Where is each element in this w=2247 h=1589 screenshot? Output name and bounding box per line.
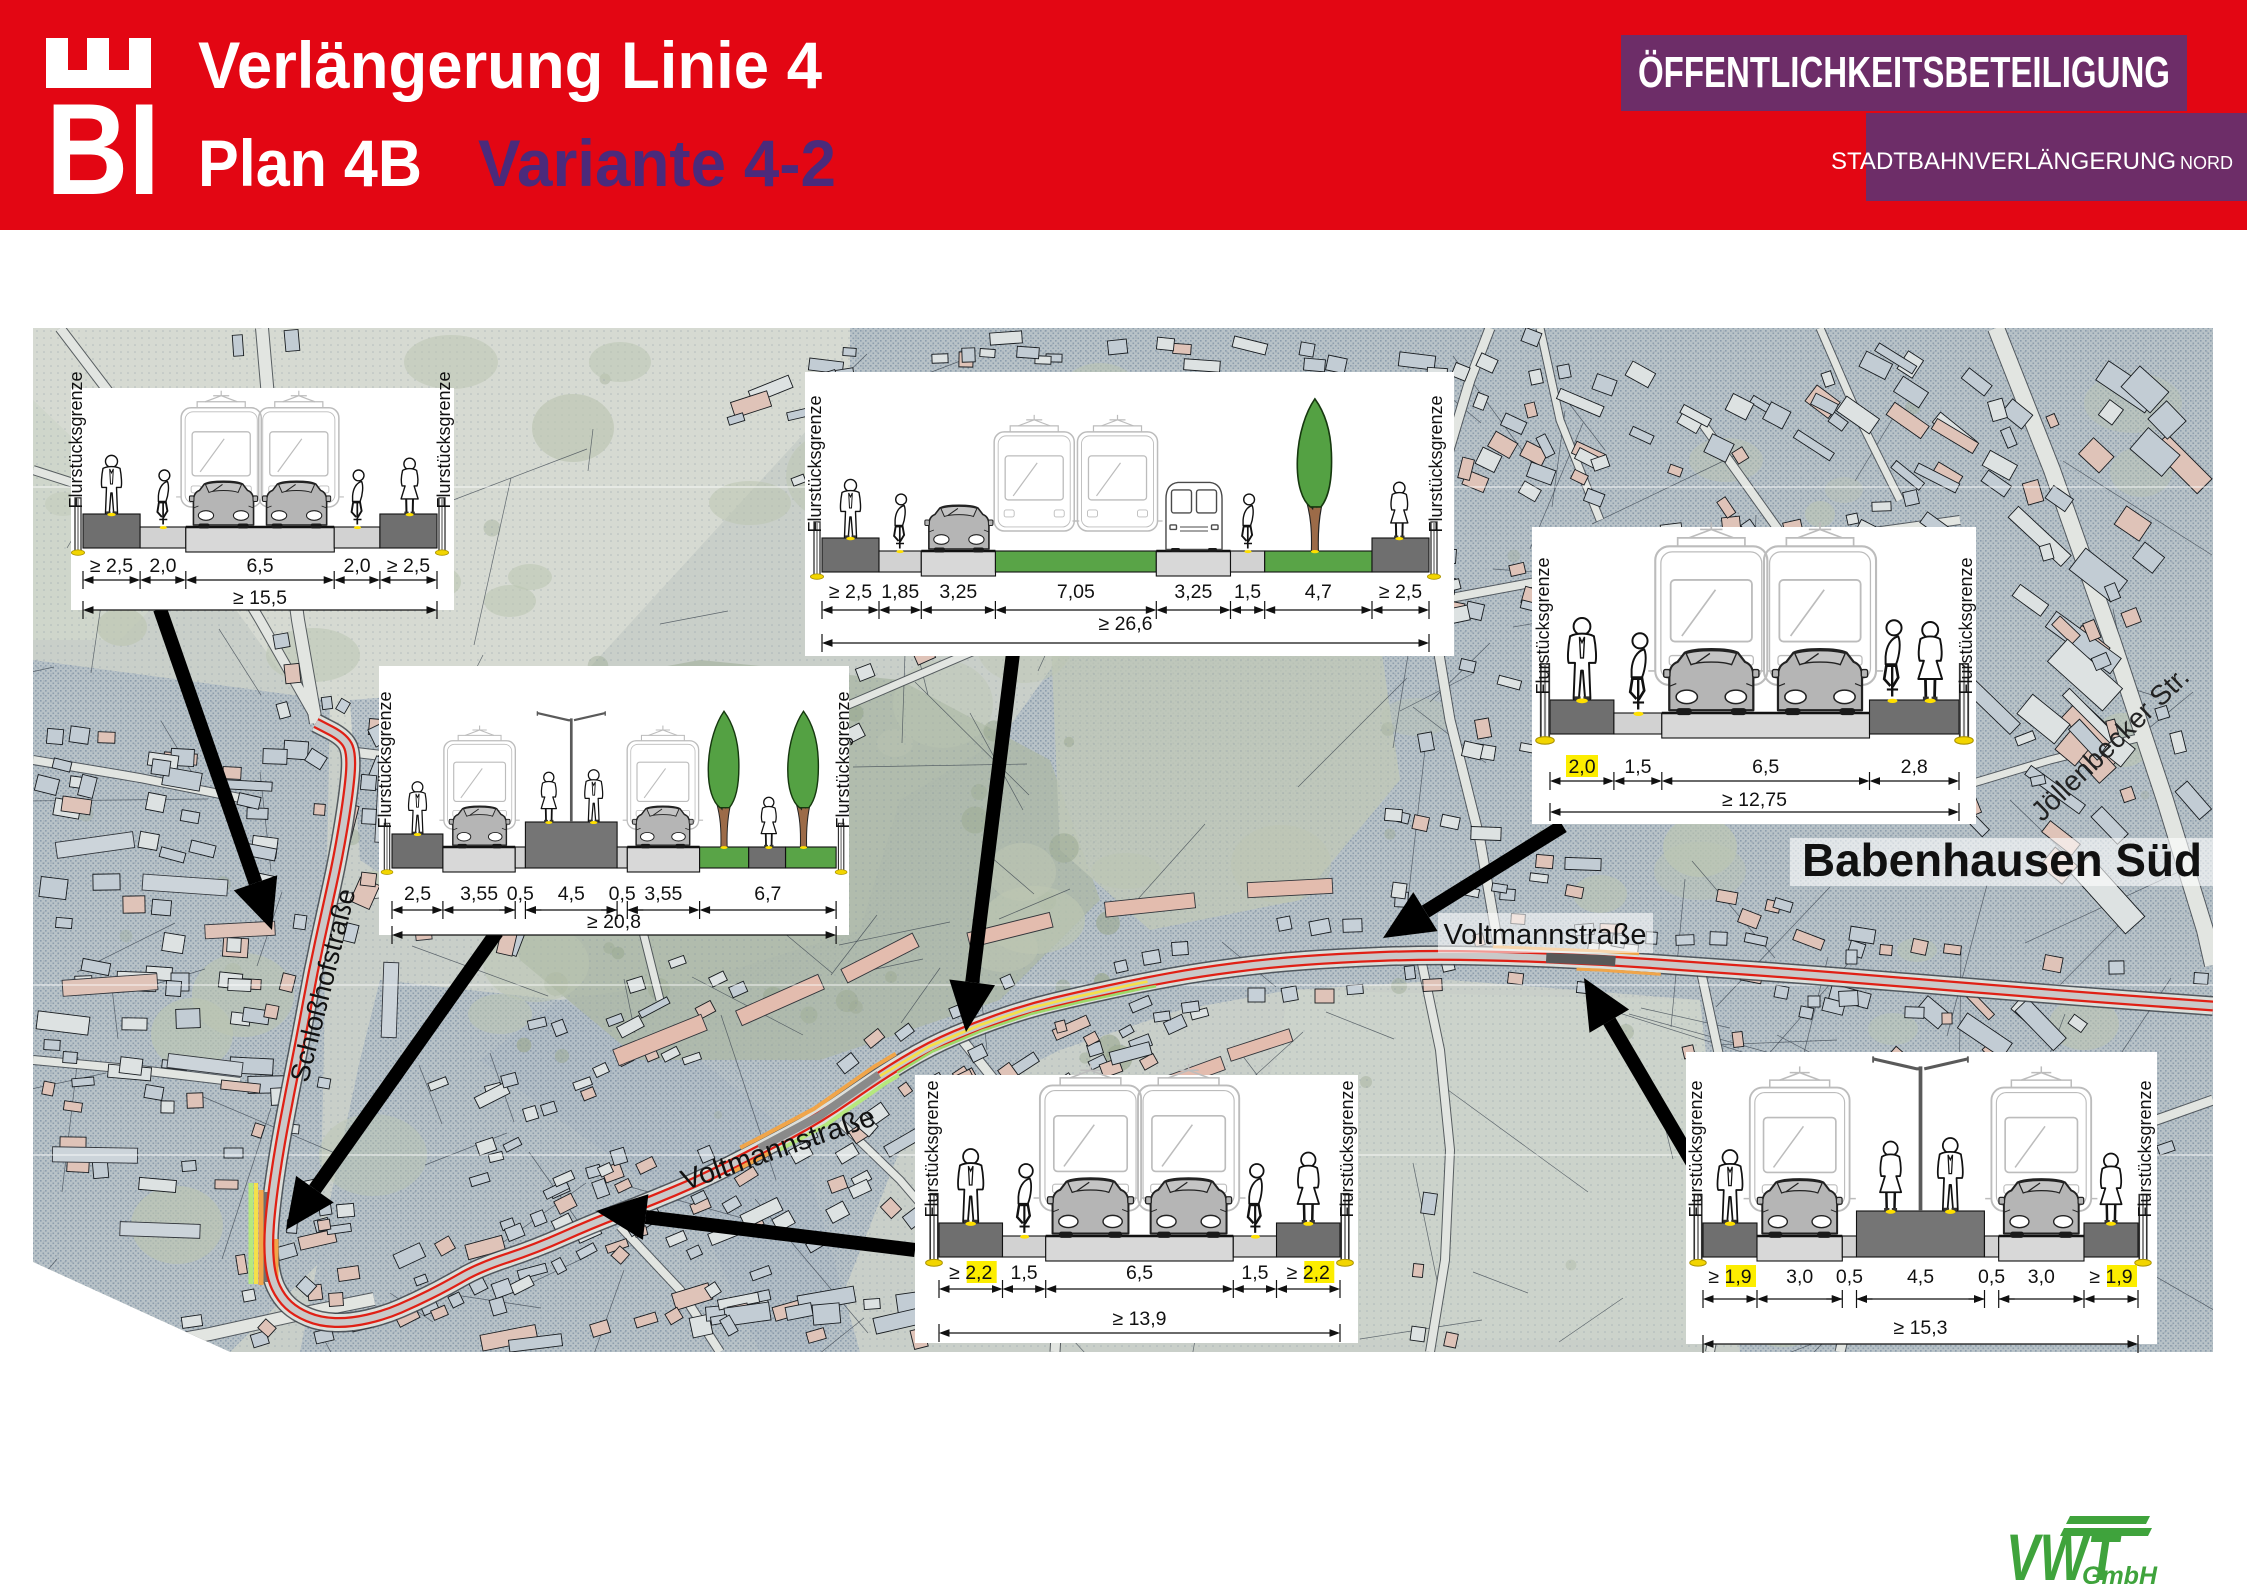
svg-text:0,5: 0,5 <box>1978 1266 2005 1288</box>
svg-text:≥ 2,5: ≥ 2,5 <box>387 555 430 577</box>
svg-text:Verlängerung Linie 4: Verlängerung Linie 4 <box>198 28 822 102</box>
svg-text:Flurstücksgrenze: Flurstücksgrenze <box>66 371 86 508</box>
svg-text:BI: BI <box>46 76 160 222</box>
svg-text:2,0: 2,0 <box>344 555 371 577</box>
svg-text:≥ 2,5: ≥ 2,5 <box>1379 581 1422 603</box>
svg-text:Flurstücksgrenze: Flurstücksgrenze <box>1337 1080 1357 1217</box>
svg-text:2,5: 2,5 <box>404 883 431 905</box>
svg-text:3,55: 3,55 <box>460 883 498 905</box>
svg-text:Flurstücksgrenze: Flurstücksgrenze <box>1956 557 1976 694</box>
svg-text:≥ 2,2: ≥ 2,2 <box>949 1262 992 1284</box>
svg-text:4,5: 4,5 <box>1907 1266 1934 1288</box>
svg-text:1,5: 1,5 <box>1234 581 1261 603</box>
svg-text:Voltmannstraße: Voltmannstraße <box>1443 919 1646 951</box>
svg-text:Babenhausen Süd: Babenhausen Süd <box>1802 834 2202 886</box>
svg-text:Flurstücksgrenze: Flurstücksgrenze <box>1426 395 1446 532</box>
svg-text:Flurstücksgrenze: Flurstücksgrenze <box>1686 1080 1706 1217</box>
svg-text:Flurstücksgrenze: Flurstücksgrenze <box>434 371 454 508</box>
svg-text:1,5: 1,5 <box>1624 756 1651 778</box>
svg-text:1,85: 1,85 <box>881 581 919 603</box>
svg-text:Flurstücksgrenze: Flurstücksgrenze <box>805 395 825 532</box>
svg-text:Flurstücksgrenze: Flurstücksgrenze <box>833 691 853 828</box>
svg-text:3,25: 3,25 <box>1174 581 1212 603</box>
svg-text:≥ 2,5: ≥ 2,5 <box>829 581 872 603</box>
svg-text:2,8: 2,8 <box>1901 756 1928 778</box>
svg-text:Flurstücksgrenze: Flurstücksgrenze <box>2135 1080 2155 1217</box>
svg-text:Flurstücksgrenze: Flurstücksgrenze <box>922 1080 942 1217</box>
svg-text:≥ 13,9: ≥ 13,9 <box>1112 1308 1166 1330</box>
svg-text:1,5: 1,5 <box>1241 1262 1268 1284</box>
svg-text:6,5: 6,5 <box>1752 756 1779 778</box>
svg-text:3,55: 3,55 <box>644 883 682 905</box>
svg-text:STADTBAHNVERLÄNGERUNGNORD: STADTBAHNVERLÄNGERUNGNORD <box>1831 148 2233 175</box>
svg-text:≥ 2,5: ≥ 2,5 <box>90 555 133 577</box>
svg-text:6,7: 6,7 <box>754 883 781 905</box>
svg-text:6,5: 6,5 <box>1126 1262 1153 1284</box>
svg-text:≥ 12,75: ≥ 12,75 <box>1722 789 1787 811</box>
svg-text:7,05: 7,05 <box>1057 581 1095 603</box>
svg-text:≥ 1,9: ≥ 1,9 <box>1708 1266 1751 1288</box>
svg-text:4,7: 4,7 <box>1305 581 1332 603</box>
svg-text:≥ 26,6: ≥ 26,6 <box>1098 613 1152 635</box>
svg-text:0,5: 0,5 <box>507 883 534 905</box>
svg-text:3,0: 3,0 <box>1786 1266 1813 1288</box>
svg-text:≥ 2,2: ≥ 2,2 <box>1287 1262 1330 1284</box>
svg-text:0,5: 0,5 <box>1836 1266 1863 1288</box>
svg-text:≥ 15,3: ≥ 15,3 <box>1893 1317 1947 1339</box>
svg-text:≥ 15,5: ≥ 15,5 <box>233 587 287 609</box>
svg-text:ÖFFENTLICHKEITSBETEILIGUNG: ÖFFENTLICHKEITSBETEILIGUNG <box>1638 48 2170 97</box>
svg-text:≥ 1,9: ≥ 1,9 <box>2089 1266 2132 1288</box>
svg-text:2,0: 2,0 <box>1568 756 1595 778</box>
svg-text:3,0: 3,0 <box>2028 1266 2055 1288</box>
svg-text:0,5: 0,5 <box>609 883 636 905</box>
svg-text:6,5: 6,5 <box>246 555 273 577</box>
svg-text:Flurstücksgrenze: Flurstücksgrenze <box>1533 557 1553 694</box>
svg-text:4,5: 4,5 <box>558 883 585 905</box>
svg-text:Plan 4B: Plan 4B <box>198 126 422 200</box>
svg-text:1,5: 1,5 <box>1011 1262 1038 1284</box>
svg-text:3,25: 3,25 <box>939 581 977 603</box>
svg-text:≥ 20,8: ≥ 20,8 <box>587 911 641 933</box>
svg-text:Variante 4-2: Variante 4-2 <box>478 126 836 200</box>
svg-text:2,0: 2,0 <box>149 555 176 577</box>
svg-text:GmbH: GmbH <box>2082 1562 2158 1589</box>
svg-text:Flurstücksgrenze: Flurstücksgrenze <box>375 691 395 828</box>
